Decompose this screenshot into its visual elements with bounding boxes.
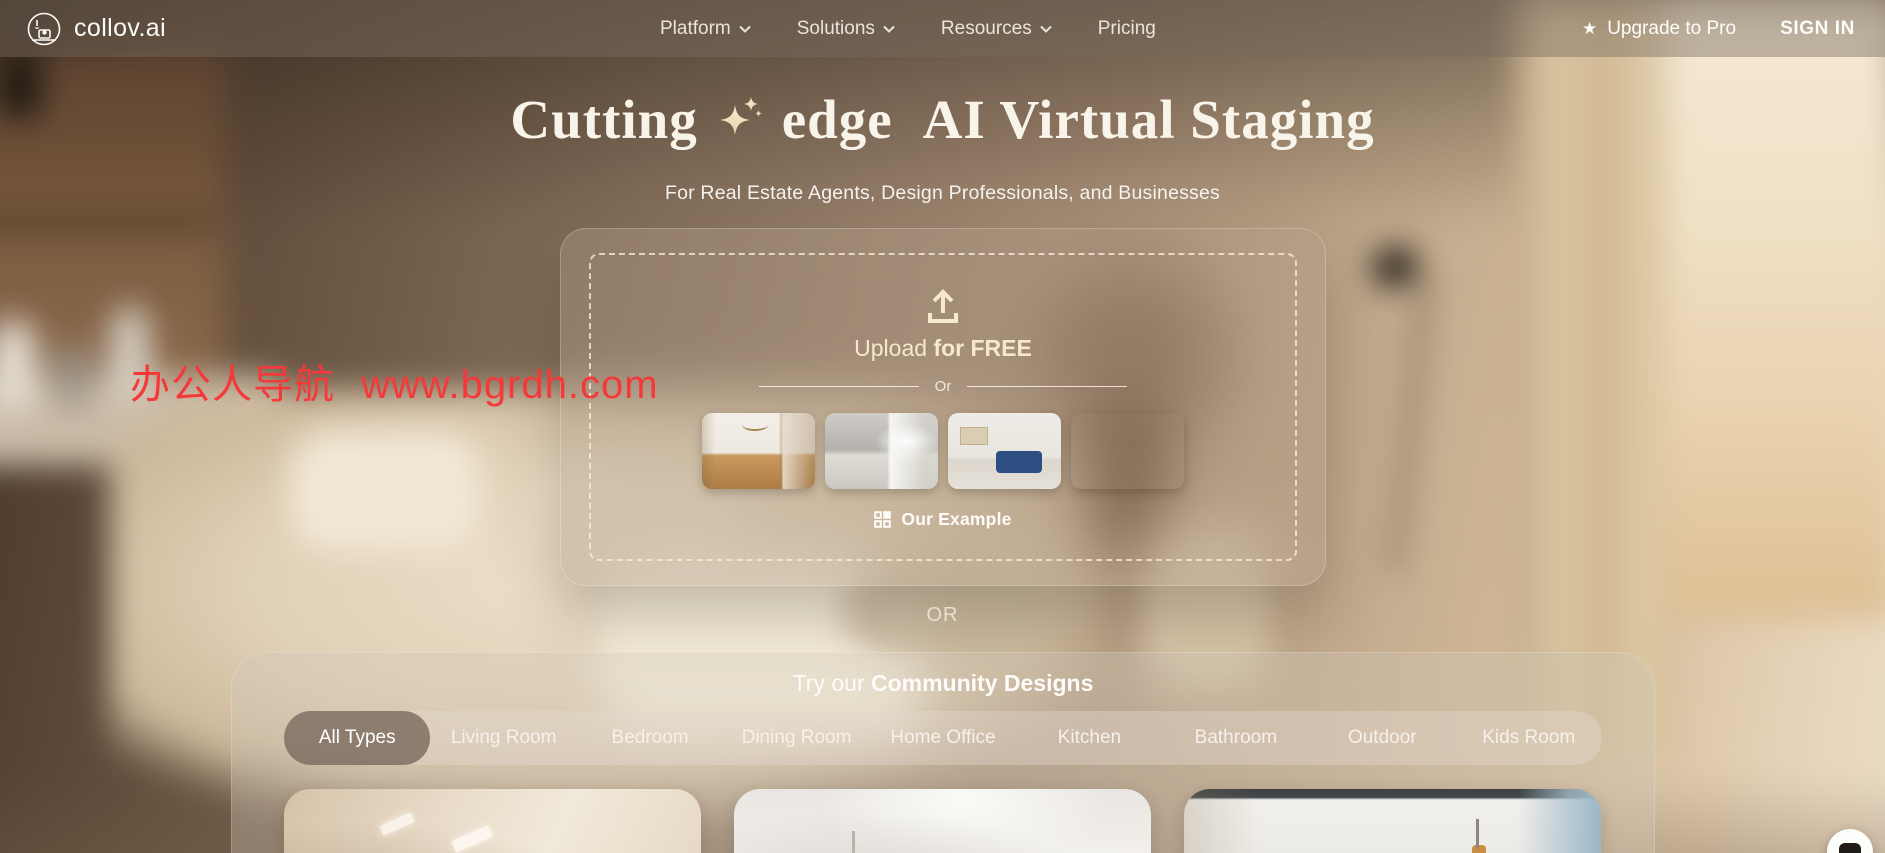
our-example-button[interactable]: Our Example (874, 509, 1011, 530)
chevron-down-icon (1040, 25, 1052, 33)
example-thumbnail-empty-room-wood-floor[interactable] (702, 413, 815, 489)
upload-label-bold: for FREE (933, 335, 1031, 361)
community-heading-regular: Try our (793, 670, 871, 696)
bg-vase (0, 320, 36, 410)
tab-bedroom[interactable]: Bedroom (577, 711, 723, 765)
nav-actions: ★ Upgrade to Pro SIGN IN (1582, 18, 1855, 40)
sparkle-icon (718, 97, 762, 143)
community-design-cards (284, 789, 1602, 853)
or-separator: OR (0, 604, 1885, 627)
chevron-down-icon (883, 25, 895, 33)
bg-vase (55, 345, 89, 407)
chat-icon (1839, 843, 1861, 853)
tab-kids-room[interactable]: Kids Room (1456, 711, 1602, 765)
nav-item-label: Solutions (797, 18, 875, 40)
grid-icon (874, 511, 891, 528)
tab-bathroom[interactable]: Bathroom (1163, 711, 1309, 765)
nav-menu: Platform Solutions Resources Pricing (660, 18, 1156, 40)
hero-title: Cutting edge AI Virtual Staging (0, 88, 1885, 151)
community-heading: Try our Community Designs (232, 670, 1654, 697)
divider-line (759, 386, 919, 387)
nav-item-pricing[interactable]: Pricing (1098, 18, 1156, 40)
design-card-modern-room[interactable] (1184, 789, 1601, 853)
example-thumbnails (702, 413, 1184, 489)
example-thumbnail-warm-classic-room[interactable] (1071, 413, 1184, 489)
nav-item-label: Platform (660, 18, 731, 40)
divider-label: Or (935, 378, 952, 395)
bg-cabinet-shelf (0, 215, 215, 229)
upgrade-to-pro-button[interactable]: ★ Upgrade to Pro (1582, 18, 1736, 40)
brand-logo[interactable]: collov.ai (26, 11, 166, 47)
divider-line (967, 386, 1127, 387)
nav-item-label: Pricing (1098, 18, 1156, 40)
hero-title-word: Cutting (510, 88, 697, 151)
bg-pillow (290, 430, 480, 550)
watermark-chinese: 办公人导航 (130, 363, 335, 407)
hero-title-word: edge (782, 88, 893, 151)
navbar: collov.ai Platform Solutions Resources P… (0, 0, 1885, 57)
watermark-url: www.bgrdh.com (361, 363, 659, 407)
chevron-down-icon (739, 25, 751, 33)
tab-kitchen[interactable]: Kitchen (1016, 711, 1162, 765)
nav-item-label: Resources (941, 18, 1032, 40)
tab-home-office[interactable]: Home Office (870, 711, 1016, 765)
room-type-tabs: All Types Living Room Bedroom Dining Roo… (284, 711, 1602, 765)
upload-or-divider: Or (759, 378, 1128, 395)
upload-label-regular: Upload (854, 335, 933, 361)
community-heading-bold: Community Designs (871, 670, 1093, 696)
community-designs-panel: Try our Community Designs All Types Livi… (231, 652, 1655, 853)
sign-in-button[interactable]: SIGN IN (1780, 18, 1855, 40)
hero-subtitle: For Real Estate Agents, Design Professio… (0, 182, 1885, 205)
tab-outdoor[interactable]: Outdoor (1309, 711, 1455, 765)
example-thumbnail-blue-sofa-room[interactable] (948, 413, 1061, 489)
nav-item-solutions[interactable]: Solutions (797, 18, 895, 40)
nav-item-resources[interactable]: Resources (941, 18, 1052, 40)
brand-name[interactable]: collov.ai (74, 14, 166, 43)
page: collov.ai Platform Solutions Resources P… (0, 0, 1885, 853)
upload-dropzone[interactable]: Upload for FREE Or Our Example (589, 253, 1297, 561)
star-icon: ★ (1582, 19, 1597, 39)
hero-title-word: AI Virtual Staging (923, 88, 1375, 151)
design-card-white-ceiling[interactable] (734, 789, 1151, 853)
example-thumbnail-empty-room-gray[interactable] (825, 413, 938, 489)
upload-label: Upload for FREE (854, 335, 1032, 362)
upload-icon (922, 285, 964, 327)
upgrade-label: Upgrade to Pro (1607, 18, 1736, 40)
tab-living-room[interactable]: Living Room (430, 711, 576, 765)
collov-logo-icon (26, 11, 62, 47)
nav-item-platform[interactable]: Platform (660, 18, 751, 40)
watermark-text: 办公人导航www.bgrdh.com (130, 352, 659, 410)
tab-dining-room[interactable]: Dining Room (723, 711, 869, 765)
our-example-label: Our Example (901, 509, 1011, 530)
design-card-beige-interior[interactable] (284, 789, 701, 853)
tab-all-types[interactable]: All Types (284, 711, 430, 765)
upload-card: Upload for FREE Or Our Example (560, 228, 1326, 586)
